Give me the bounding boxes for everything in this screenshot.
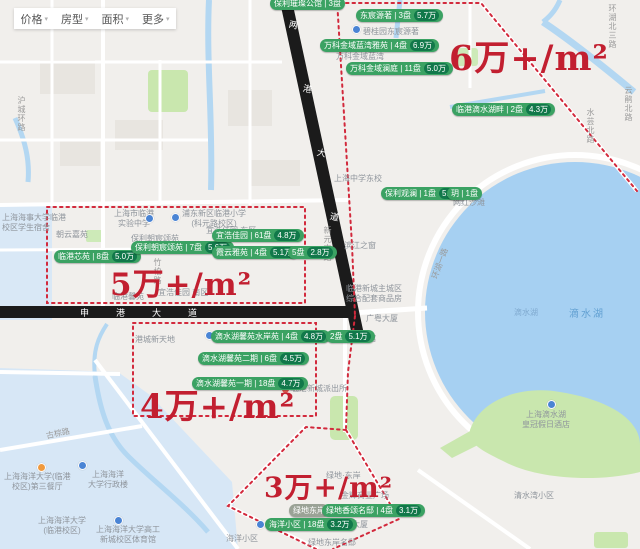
map-text: 上海滴水湖 皇冠假日酒店 <box>522 410 570 429</box>
map-text: 绿地东岸名邸 <box>308 538 356 548</box>
lake-name: 滴水湖 <box>514 308 538 318</box>
road-label: 水芸北路 <box>585 108 596 144</box>
filter-label: 房型 <box>61 11 83 27</box>
map-text: 清水湾小区 <box>514 491 554 501</box>
map-text: 上海海洋 大学行政楼 <box>88 470 128 489</box>
chevron-down-icon: ▾ <box>44 15 48 23</box>
listing-pill[interactable]: 宜浩佳园 | 61盘4.8万 <box>212 229 304 242</box>
avenue-char: 港 <box>116 306 125 319</box>
community-poi-icon[interactable] <box>352 25 361 34</box>
map-text: 港城新天地 <box>135 335 175 345</box>
price-zone-label-3w: 3万+/m² <box>264 466 393 506</box>
filter-area[interactable]: 面积 ▾ <box>101 11 129 27</box>
listing-price-badge: 6.9万 <box>410 40 435 51</box>
filter-label: 价格 <box>20 11 42 27</box>
listing-label: 保利璀璨公馆 | 3盘 <box>274 0 341 10</box>
hotel-poi-icon[interactable] <box>547 400 556 409</box>
listing-label: 霞云雅苑 | 4盘 <box>216 246 267 259</box>
listing-label: 宜浩佳园 | 61盘 <box>216 229 271 242</box>
map-text: 海洋小区 <box>226 534 258 544</box>
filter-label: 更多 <box>142 11 164 27</box>
listing-price-badge: 3.1万 <box>396 505 421 516</box>
filter-room-type[interactable]: 房型 ▾ <box>61 11 89 27</box>
map-text: 碧桂园东宸源著 <box>363 27 419 37</box>
map-text: 上海中学东校 <box>334 174 382 184</box>
chevron-down-icon: ▾ <box>125 15 129 23</box>
lake-name: 滴水湖 <box>569 309 605 321</box>
filter-price[interactable]: 价格 ▾ <box>20 11 48 27</box>
avenue-char: 申 <box>80 306 89 319</box>
listing-pill[interactable]: 5盘2.8万 <box>288 246 337 259</box>
filter-label: 面积 <box>101 11 123 27</box>
school-poi-icon[interactable] <box>145 214 154 223</box>
gym-poi-icon[interactable] <box>114 516 123 525</box>
map-text: 临港新城主城区 综合配套商品房 <box>346 284 402 303</box>
listing-pill[interactable]: 2盘5.1万 <box>326 330 375 343</box>
avenue-char: 大 <box>152 306 161 319</box>
filter-bar: 价格 ▾ 房型 ▾ 面积 ▾ 更多 ▾ <box>14 8 176 29</box>
listing-pill[interactable]: 万科金域澜庭 | 11盘5.0万 <box>346 62 453 75</box>
road-label: 沪城环路 <box>16 96 27 132</box>
listing-price-badge: 4.3万 <box>526 104 551 115</box>
listing-label: 2盘 <box>330 330 342 343</box>
listing-price-badge: 4.5万 <box>280 353 305 364</box>
avenue-char: 道 <box>188 306 197 319</box>
listing-price-badge: 4.8万 <box>301 331 326 342</box>
price-zone-label-6w: 6万+/m² <box>449 30 609 81</box>
listing-label: 滴水湖馨苑水岸苑 | 4盘 <box>215 330 298 343</box>
listing-label: 海洋小区 | 18盘 <box>269 518 324 531</box>
map-text: 上海海洋大学(临港 校区)第三餐厅 <box>4 472 71 491</box>
map-text: 滨江之窗 <box>344 241 376 251</box>
listing-pill[interactable]: 玥 | 1盘 <box>447 187 482 200</box>
listing-label: 保利朝宸颂苑 | 7盘 <box>135 241 202 254</box>
listing-label: 玥 | 1盘 <box>451 187 478 200</box>
map-canvas[interactable]: 申 港 大 道 两 港 大 道 竹柏路 新元南路 古棕路 环湖一路 环湖北三路 … <box>0 0 640 549</box>
listing-pill[interactable]: 临港滴水湖畔 | 2盘4.3万 <box>452 103 555 116</box>
map-text: 上海海洋大学高工 新城校区体育馆 <box>96 525 160 544</box>
listing-label: 5盘 <box>292 246 304 259</box>
listing-price-badge: 5.7万 <box>414 10 439 21</box>
listing-label: 临港滴水湖畔 | 2盘 <box>456 103 523 116</box>
listing-price-badge: 5.1万 <box>345 331 370 342</box>
listing-label: 保利观澜 | 1盘 <box>385 187 436 200</box>
listing-label: 万科金域澜庭 | 11盘 <box>350 62 421 75</box>
map-text: 浦东新区临港小学 (科元路校区) <box>182 209 246 228</box>
restaurant-poi-icon[interactable] <box>37 463 46 472</box>
map-text: 上海海洋大学 (临港校区) <box>38 516 86 535</box>
price-zone-label-4w: 4万+/m² <box>140 379 295 428</box>
listing-pill[interactable]: 滴水湖馨苑二期 | 6盘4.5万 <box>198 352 309 365</box>
listing-label: 临港芯苑 | 8盘 <box>58 250 109 263</box>
listing-pill[interactable]: 海洋小区 | 18盘3.2万 <box>265 518 357 531</box>
filter-more[interactable]: 更多 ▾ <box>142 11 170 27</box>
listing-pill[interactable]: 保利璀璨公馆 | 3盘 <box>270 0 345 10</box>
listing-pill[interactable]: 万科金域蓝湾雅苑 | 4盘6.9万 <box>320 39 439 52</box>
chevron-down-icon: ▾ <box>85 15 89 23</box>
listing-price-badge: 4.8万 <box>274 230 299 241</box>
university-poi-icon[interactable] <box>78 461 87 470</box>
listing-pill[interactable]: 霞云雅苑 | 4盘5.1万 <box>212 246 299 259</box>
price-zone-label-5w: 5万+/m² <box>110 259 252 304</box>
listing-pill[interactable]: 滴水湖馨苑水岸苑 | 4盘4.8万 <box>211 330 330 343</box>
community-poi-icon[interactable] <box>256 520 265 529</box>
listing-price-badge: 3.2万 <box>327 519 352 530</box>
listing-pill[interactable]: 东宸源著 | 3盘5.7万 <box>356 9 443 22</box>
listing-label: 东宸源著 | 3盘 <box>360 9 411 22</box>
listing-price-badge: 5.0万 <box>424 63 449 74</box>
map-text: 广粤大厦 <box>366 314 398 324</box>
map-text: 万科金域蓝湾 <box>336 52 384 62</box>
map-text: 上海海事大学临港 校区学生宿舍 <box>2 213 66 232</box>
school-poi-icon[interactable] <box>171 213 180 222</box>
road-label: 云鹃北路 <box>623 86 634 122</box>
chevron-down-icon: ▾ <box>166 15 170 23</box>
listing-label: 万科金域蓝湾雅苑 | 4盘 <box>324 39 407 52</box>
listing-label: 滴水湖馨苑二期 | 6盘 <box>202 352 277 365</box>
listing-price-badge: 2.8万 <box>307 247 332 258</box>
